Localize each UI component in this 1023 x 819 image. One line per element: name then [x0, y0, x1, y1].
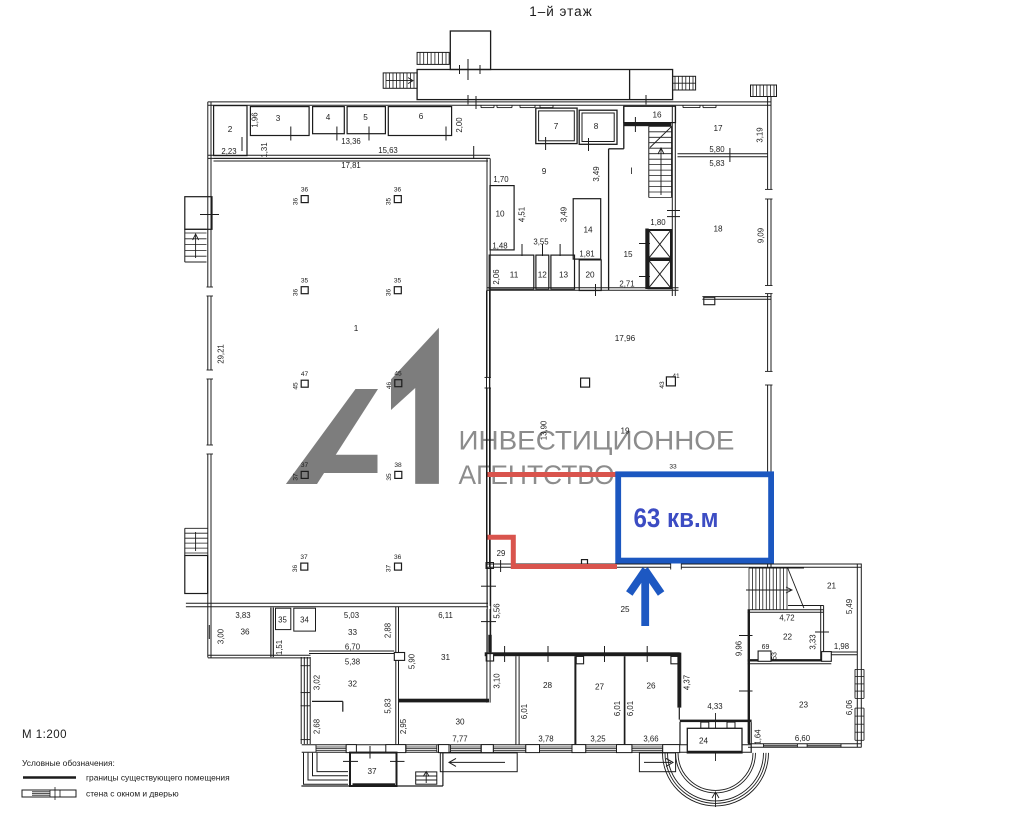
svg-text:1,51: 1,51 [275, 640, 284, 655]
svg-text:37: 37 [293, 473, 300, 481]
svg-text:33: 33 [348, 628, 358, 637]
svg-text:17: 17 [713, 124, 723, 133]
svg-text:29: 29 [497, 549, 506, 558]
svg-text:36: 36 [240, 628, 250, 637]
svg-text:3,49: 3,49 [560, 207, 569, 222]
svg-text:I: I [630, 166, 633, 176]
svg-text:63 кв.м: 63 кв.м [634, 503, 719, 533]
svg-text:14: 14 [583, 226, 593, 235]
svg-text:2,88: 2,88 [384, 623, 393, 638]
svg-text:37: 37 [367, 767, 377, 776]
svg-text:1,31: 1,31 [260, 142, 269, 157]
svg-text:1,98: 1,98 [834, 642, 849, 651]
svg-text:33: 33 [669, 464, 677, 471]
svg-text:6,06: 6,06 [845, 700, 854, 715]
svg-text:3,19: 3,19 [756, 127, 765, 142]
svg-text:36: 36 [394, 187, 402, 194]
svg-text:24: 24 [699, 737, 709, 746]
svg-text:43: 43 [659, 381, 666, 389]
svg-text:4,51: 4,51 [518, 207, 527, 222]
svg-text:45: 45 [394, 371, 402, 378]
svg-text:1,81: 1,81 [579, 250, 594, 259]
svg-text:13,36: 13,36 [341, 137, 361, 146]
svg-text:5,03: 5,03 [344, 611, 359, 620]
svg-text:46: 46 [386, 382, 393, 390]
svg-text:29,21: 29,21 [217, 344, 226, 364]
svg-text:4: 4 [326, 113, 331, 122]
svg-text:35: 35 [386, 473, 393, 481]
svg-text:5,83: 5,83 [709, 159, 724, 168]
svg-text:3,49: 3,49 [592, 166, 601, 181]
svg-text:7: 7 [554, 122, 559, 131]
svg-text:69: 69 [762, 644, 770, 651]
svg-text:1,64: 1,64 [754, 729, 763, 745]
svg-text:6,01: 6,01 [520, 704, 529, 719]
svg-text:22: 22 [783, 633, 793, 642]
svg-text:1,48: 1,48 [492, 242, 507, 251]
svg-text:6,70: 6,70 [345, 643, 361, 652]
svg-text:5,38: 5,38 [345, 658, 360, 667]
svg-text:3,10: 3,10 [493, 673, 502, 689]
svg-text:3,00: 3,00 [217, 628, 226, 644]
svg-text:20: 20 [585, 271, 595, 280]
svg-text:3: 3 [276, 114, 281, 123]
svg-text:38: 38 [394, 462, 402, 469]
svg-text:35: 35 [394, 278, 402, 285]
svg-text:ИНВЕСТИЦИОННОЕ: ИНВЕСТИЦИОННОЕ [459, 426, 735, 456]
svg-text:11: 11 [510, 271, 519, 280]
svg-text:3,55: 3,55 [533, 238, 549, 247]
svg-text:8: 8 [594, 122, 599, 131]
svg-text:16: 16 [652, 111, 662, 120]
svg-text:36: 36 [394, 554, 402, 561]
svg-text:34: 34 [300, 616, 309, 625]
svg-text:1,70: 1,70 [493, 175, 509, 184]
svg-text:12: 12 [538, 271, 548, 280]
svg-text:15,63: 15,63 [378, 146, 398, 155]
svg-text:25: 25 [620, 605, 630, 614]
svg-text:3,02: 3,02 [313, 675, 322, 690]
svg-text:1: 1 [354, 324, 359, 333]
svg-text:3,66: 3,66 [643, 735, 658, 744]
svg-text:37: 37 [386, 565, 393, 573]
svg-text:47: 47 [301, 371, 309, 378]
svg-text:5,49: 5,49 [845, 599, 854, 614]
svg-text:4,72: 4,72 [779, 614, 794, 623]
svg-text:5,56: 5,56 [493, 603, 502, 618]
svg-text:35: 35 [278, 616, 287, 625]
svg-text:28: 28 [543, 681, 553, 690]
svg-text:4,33: 4,33 [707, 702, 722, 711]
svg-text:2,23: 2,23 [221, 147, 236, 156]
svg-text:1–й этаж: 1–й этаж [529, 4, 592, 19]
svg-text:М 1:200: М 1:200 [22, 729, 67, 741]
svg-text:6,01: 6,01 [626, 701, 635, 716]
svg-text:9: 9 [542, 167, 547, 176]
svg-text:36: 36 [386, 289, 393, 297]
svg-text:18: 18 [713, 225, 723, 234]
svg-text:3,33: 3,33 [808, 634, 817, 649]
svg-text:7,77: 7,77 [452, 735, 467, 744]
svg-text:5,80: 5,80 [709, 145, 725, 154]
svg-text:35: 35 [301, 278, 309, 285]
svg-text:36: 36 [293, 289, 300, 297]
svg-text:9,96: 9,96 [735, 641, 744, 656]
svg-text:4,37: 4,37 [683, 675, 692, 690]
svg-text:1,80: 1,80 [650, 218, 666, 227]
svg-text:1,96: 1,96 [251, 112, 260, 127]
svg-text:45: 45 [293, 382, 300, 390]
svg-text:6,01: 6,01 [613, 701, 622, 716]
svg-text:2,00: 2,00 [455, 117, 464, 133]
svg-text:15: 15 [623, 250, 633, 259]
svg-text:17,96: 17,96 [615, 334, 636, 343]
svg-text:36: 36 [293, 198, 300, 206]
svg-text:6: 6 [419, 112, 424, 121]
svg-text:23: 23 [799, 701, 809, 710]
svg-text:3,78: 3,78 [538, 735, 553, 744]
svg-text:27: 27 [595, 683, 605, 692]
svg-text:3,25: 3,25 [590, 735, 606, 744]
svg-text:2,06: 2,06 [492, 269, 501, 284]
svg-text:30: 30 [455, 718, 465, 727]
svg-text:9,09: 9,09 [757, 228, 766, 243]
svg-text:6,60: 6,60 [795, 734, 811, 743]
svg-text:17,81: 17,81 [341, 161, 361, 170]
svg-text:стена с окном и дверью: стена с окном и дверью [86, 789, 179, 799]
svg-text:2: 2 [228, 125, 233, 134]
svg-text:10: 10 [495, 210, 505, 219]
svg-text:2,68: 2,68 [313, 719, 322, 734]
svg-text:31: 31 [441, 653, 451, 662]
svg-text:35: 35 [386, 198, 393, 206]
svg-text:32: 32 [348, 680, 358, 689]
svg-text:53: 53 [772, 652, 779, 660]
svg-text:2,71: 2,71 [619, 280, 634, 289]
svg-text:21: 21 [827, 582, 837, 591]
svg-text:2,95: 2,95 [399, 718, 408, 734]
svg-text:5: 5 [363, 113, 368, 122]
svg-text:37: 37 [300, 554, 308, 561]
svg-text:Условные обозначения:: Условные обозначения: [22, 758, 115, 768]
svg-text:36: 36 [301, 187, 309, 194]
svg-text:5,83: 5,83 [384, 698, 393, 713]
svg-text:13: 13 [559, 271, 569, 280]
svg-text:41: 41 [672, 373, 680, 380]
svg-text:19: 19 [620, 427, 630, 436]
svg-text:5,90: 5,90 [408, 653, 417, 669]
svg-text:13,90: 13,90 [540, 420, 549, 440]
svg-text:26: 26 [646, 682, 656, 691]
svg-text:6,11: 6,11 [438, 611, 453, 620]
svg-text:границы существующего помеще: границы существующего помещения [86, 773, 230, 783]
svg-text:3,83: 3,83 [235, 611, 250, 620]
svg-text:36: 36 [292, 565, 299, 573]
svg-text:37: 37 [301, 462, 309, 469]
